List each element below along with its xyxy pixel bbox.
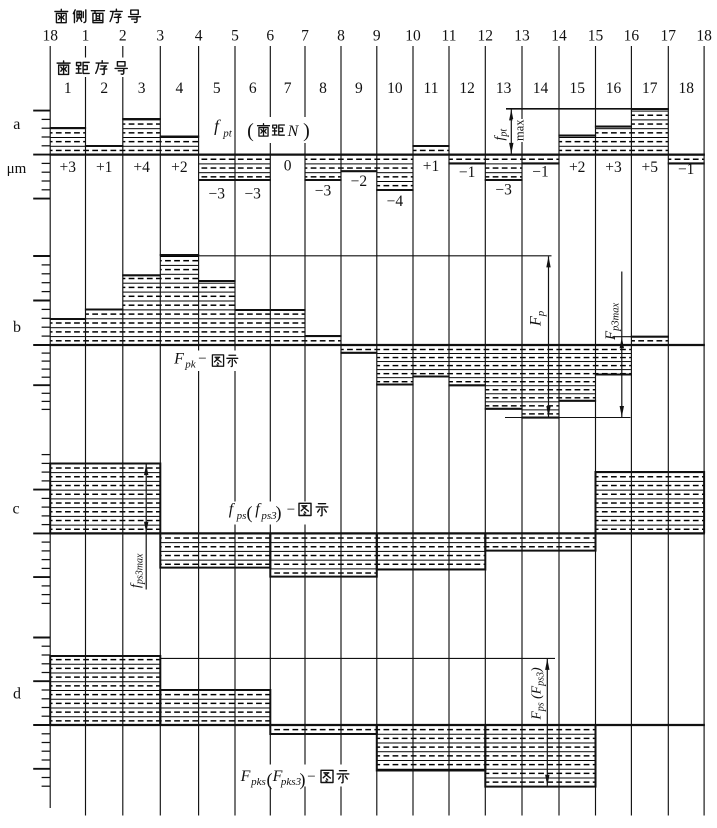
- svg-text:+2: +2: [569, 159, 586, 176]
- svg-text:8: 8: [319, 80, 327, 97]
- svg-text:(: (: [267, 770, 273, 791]
- svg-text:11: 11: [442, 28, 457, 45]
- svg-text:+1: +1: [423, 158, 440, 175]
- svg-text:−3: −3: [315, 183, 332, 200]
- svg-text:ps: ps: [236, 510, 247, 522]
- svg-text:18: 18: [696, 28, 712, 45]
- svg-text:1: 1: [64, 80, 72, 97]
- svg-text:+1: +1: [96, 159, 113, 176]
- svg-text:2: 2: [100, 80, 108, 97]
- svg-text:+3: +3: [60, 159, 77, 176]
- svg-text:5: 5: [213, 80, 221, 97]
- svg-text:2: 2: [119, 28, 127, 45]
- svg-text:15: 15: [588, 28, 604, 45]
- svg-text:17: 17: [642, 80, 658, 97]
- svg-text:9: 9: [373, 28, 381, 45]
- svg-text:(: (: [247, 503, 253, 524]
- svg-text:−4: −4: [387, 193, 404, 210]
- svg-text:4: 4: [176, 80, 184, 97]
- svg-text:18: 18: [42, 28, 58, 45]
- svg-text:12: 12: [459, 80, 475, 97]
- svg-text:9: 9: [355, 80, 363, 97]
- svg-text:13: 13: [514, 28, 530, 45]
- svg-text:14: 14: [551, 28, 567, 45]
- svg-text:max: max: [513, 119, 527, 141]
- svg-text:10: 10: [387, 80, 403, 97]
- svg-text:7: 7: [284, 80, 292, 97]
- svg-text:10: 10: [405, 28, 421, 45]
- svg-text:−3: −3: [209, 186, 226, 203]
- svg-text:c: c: [12, 501, 19, 518]
- svg-text:16: 16: [606, 80, 622, 97]
- svg-text:7: 7: [301, 28, 309, 45]
- svg-text:pt: pt: [222, 128, 233, 140]
- svg-text:+3: +3: [605, 159, 622, 176]
- svg-text:−: −: [287, 502, 295, 518]
- svg-text:6: 6: [249, 80, 257, 97]
- svg-text:11: 11: [424, 80, 439, 97]
- svg-text:3: 3: [138, 80, 146, 97]
- svg-text:4: 4: [195, 28, 203, 45]
- svg-text:): ): [303, 120, 310, 142]
- svg-text:−3: −3: [244, 186, 261, 203]
- svg-text:13: 13: [496, 80, 512, 97]
- svg-text:d: d: [13, 686, 21, 703]
- svg-text:16: 16: [624, 28, 640, 45]
- svg-text:pks: pks: [250, 776, 266, 788]
- svg-text:+4: +4: [133, 159, 150, 176]
- svg-text:b: b: [13, 319, 21, 336]
- svg-text:−: −: [198, 351, 206, 367]
- svg-text:18: 18: [678, 80, 694, 97]
- svg-text:+2: +2: [171, 159, 188, 176]
- svg-text:F: F: [240, 768, 251, 785]
- svg-text:pk: pk: [184, 359, 197, 371]
- svg-text:17: 17: [661, 28, 677, 45]
- svg-text:−2: −2: [351, 173, 368, 190]
- svg-text:14: 14: [533, 80, 549, 97]
- svg-text:+5: +5: [642, 159, 659, 176]
- svg-text:−3: −3: [495, 182, 512, 199]
- svg-text:3: 3: [156, 28, 164, 45]
- svg-text:−1: −1: [678, 161, 695, 178]
- svg-text:0: 0: [284, 158, 292, 175]
- svg-text:N: N: [287, 123, 300, 140]
- svg-text:): ): [276, 503, 282, 524]
- svg-text:−1: −1: [459, 164, 476, 181]
- svg-text:a: a: [13, 116, 20, 133]
- svg-text:8: 8: [337, 28, 345, 45]
- svg-text:(: (: [247, 120, 254, 142]
- svg-text:1: 1: [82, 28, 90, 45]
- svg-text:15: 15: [569, 80, 585, 97]
- svg-text:6: 6: [266, 28, 274, 45]
- svg-text:μm: μm: [7, 161, 27, 177]
- svg-text:pks3: pks3: [280, 776, 302, 788]
- svg-text:): ): [300, 770, 306, 791]
- svg-text:−: −: [307, 769, 315, 785]
- svg-text:5: 5: [231, 28, 239, 45]
- svg-text:−1: −1: [532, 164, 549, 181]
- svg-text:12: 12: [478, 28, 494, 45]
- svg-text:F: F: [173, 351, 184, 368]
